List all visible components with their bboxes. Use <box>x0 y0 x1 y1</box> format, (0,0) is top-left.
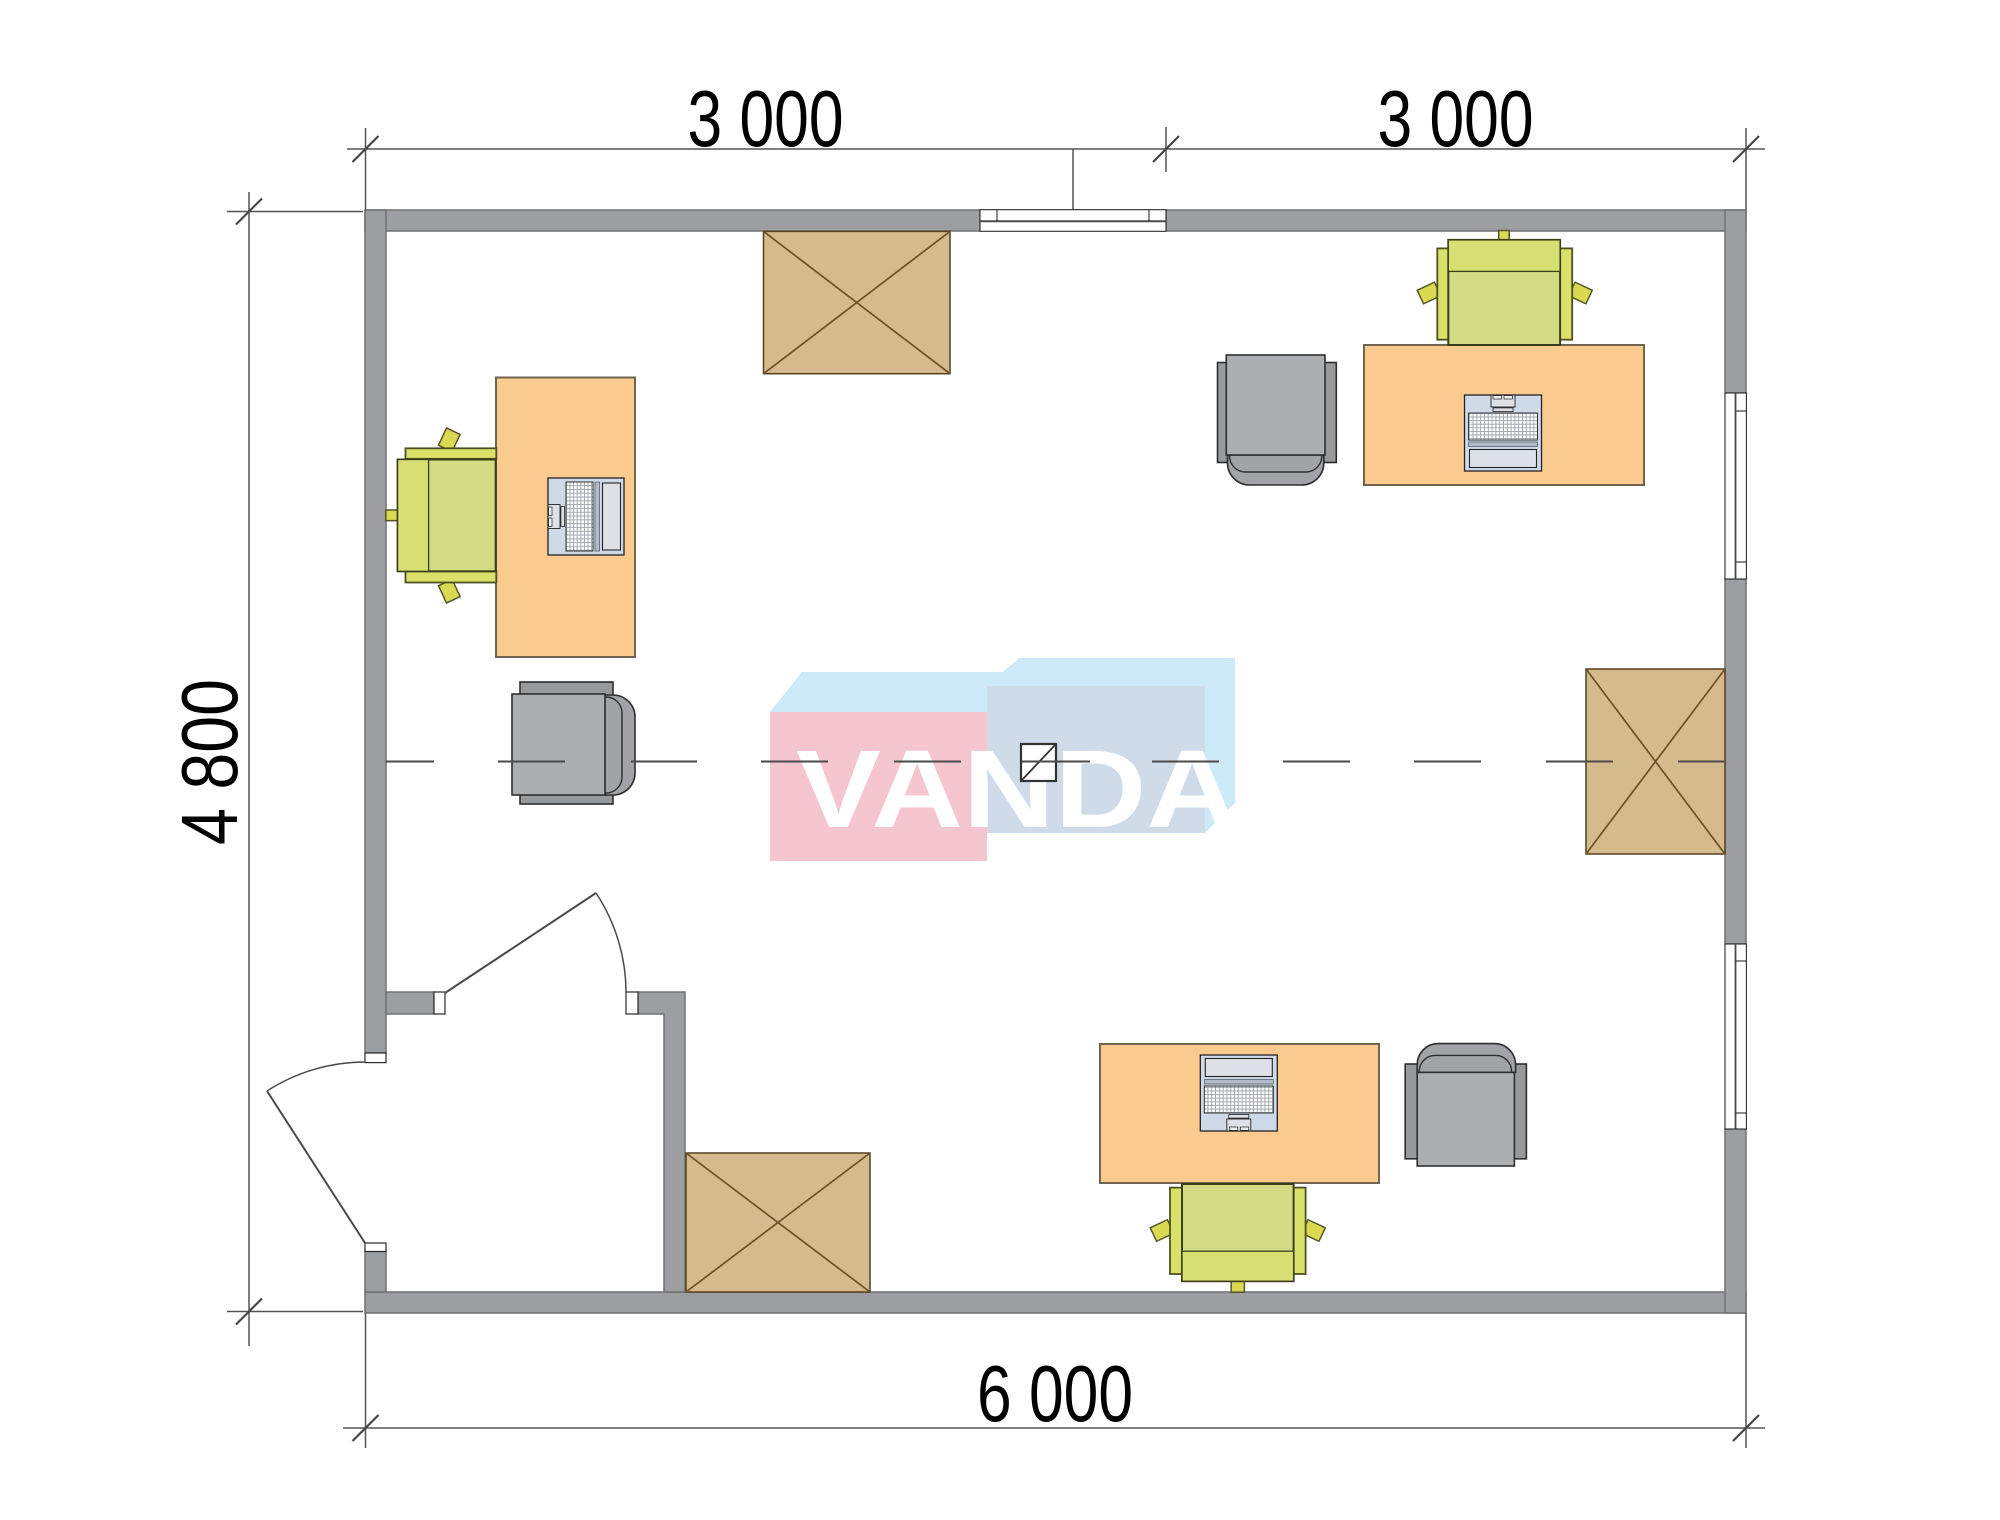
svg-text:6 000: 6 000 <box>977 1349 1133 1438</box>
svg-text:3 000: 3 000 <box>1378 74 1534 163</box>
svg-text:VANDA: VANDA <box>796 728 1238 851</box>
svg-text:4 800: 4 800 <box>165 679 254 845</box>
svg-text:3 000: 3 000 <box>688 74 844 163</box>
